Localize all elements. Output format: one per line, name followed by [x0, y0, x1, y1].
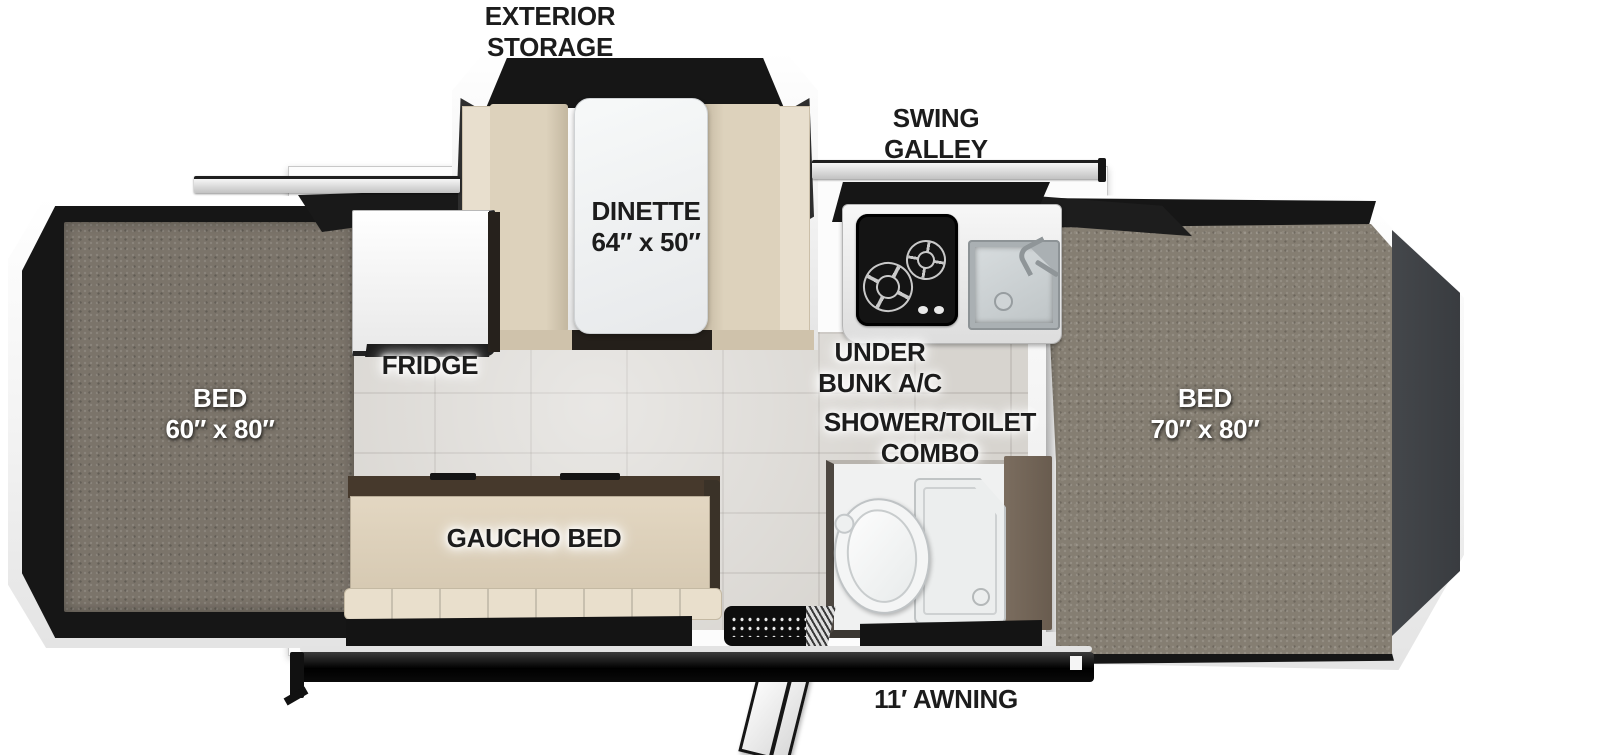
label-exterior-storage: EXTERIOR STORAGE: [485, 1, 616, 63]
step-mat-dots: [730, 615, 806, 637]
galley-rail-endcap: [1098, 158, 1106, 182]
fridge-side-gap: [488, 212, 500, 352]
stove-knob: [934, 306, 944, 314]
label-fridge: FRIDGE: [382, 350, 478, 381]
gaucho-top-band: [348, 476, 720, 498]
awning-roller-bar: [300, 652, 1094, 682]
label-shower-toilet-combo: SHOWER/TOILET COMBO: [824, 407, 1036, 469]
label-under-bunk-ac: UNDER BUNK A/C: [818, 337, 942, 399]
shower-partition-wall: [1004, 456, 1052, 630]
label-bed-right: BED 70″ x 80″: [1151, 383, 1260, 445]
stove-cooktop: [856, 214, 958, 326]
gaucho-hinge-mark: [430, 473, 476, 480]
shower-drain-icon: [972, 588, 990, 606]
awning-end-notch: [1070, 656, 1082, 670]
gaucho-hinge-mark: [560, 473, 620, 480]
stove-knob: [918, 306, 928, 314]
bed-right-end-panel: [1392, 230, 1460, 636]
dinette-bench-left: [490, 104, 568, 332]
label-swing-galley: SWING GALLEY: [884, 103, 988, 165]
window-bottom-right: [860, 620, 1042, 646]
gaucho-bolster: [344, 588, 722, 620]
label-bed-left: BED 60″ x 80″: [166, 383, 275, 445]
entry-step-mat: [724, 606, 812, 646]
label-awning: 11′ AWNING: [874, 684, 1018, 715]
dinette-bench-right: [702, 104, 780, 332]
front-storage-rack-bar: [194, 176, 460, 193]
sink-drain-icon: [994, 292, 1013, 311]
fridge-box: [352, 210, 495, 356]
label-dinette: DINETTE 64″ x 50″: [591, 196, 700, 258]
dinette-armrest-right: [778, 106, 810, 338]
floorplan-canvas: EXTERIOR STORAGE SWING GALLEY DINETTE 64…: [0, 0, 1600, 755]
label-gaucho-bed: GAUCHO BED: [447, 523, 622, 554]
galley-sink: [968, 240, 1060, 330]
window-bottom-left: [346, 616, 692, 646]
